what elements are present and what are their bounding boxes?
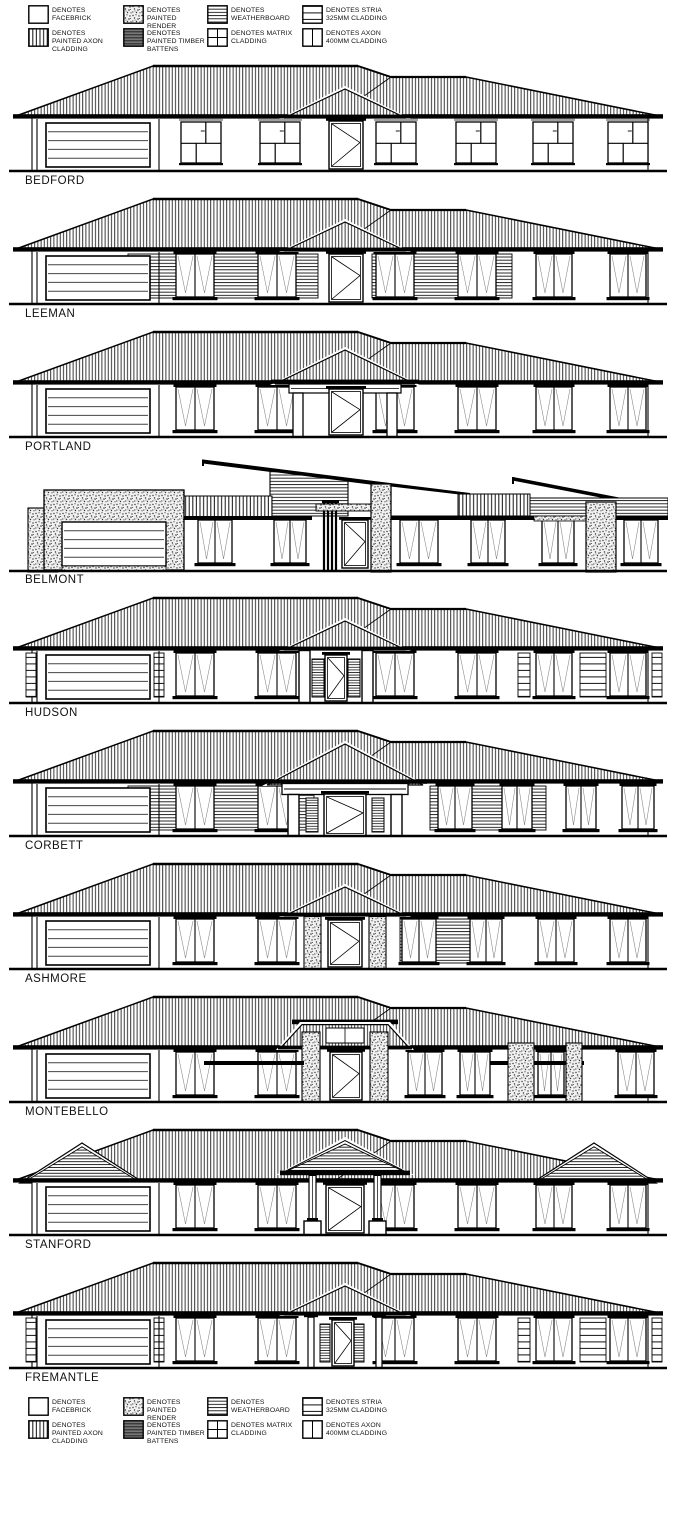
legend-column: DENOTES PAINTED RENDER DENOTES PAINTED T…: [123, 1397, 207, 1442]
legend-label: DENOTES PAINTED AXON CLADDING: [52, 28, 116, 53]
elevation-figure: HUDSON: [0, 591, 680, 719]
elevation-drawing-montebello: [8, 990, 668, 1110]
elevation-label: PORTLAND: [25, 441, 680, 453]
legend-label: DENOTES WEATHERBOARD: [231, 1397, 295, 1415]
window: [607, 384, 650, 433]
elevation-figure: STANFORD: [0, 1123, 680, 1251]
legend-label: DENOTES WEATHERBOARD: [231, 5, 295, 23]
elevation-figure: BEDFORD: [0, 59, 680, 187]
legend-label: DENOTES FACEBRICK: [52, 5, 116, 23]
legend-label: DENOTES STRIA 325mm CLADDING: [326, 5, 390, 23]
legend-label: DENOTES PAINTED TIMBER BATTENS: [147, 1420, 207, 1445]
elevation-figure: CORBETT: [0, 724, 680, 852]
window: [533, 251, 576, 300]
legend-item: DENOTES MATRIX CLADDING: [207, 28, 302, 50]
window: [455, 1182, 500, 1231]
legend-column: DENOTES WEATHERBOARD DENOTES MATRIX CLAD…: [207, 1397, 302, 1442]
window: [173, 1049, 218, 1098]
window: [399, 916, 440, 965]
legend-label: DENOTES PAINTED TIMBER BATTENS: [147, 28, 207, 53]
elevation-figure: PORTLAND: [0, 325, 680, 453]
painted-render-swatch-icon: [123, 1397, 144, 1416]
legend-item: DENOTES FACEBRICK: [28, 1397, 123, 1419]
stria-cladding-swatch-icon: [302, 1397, 323, 1416]
elevation-label: LEEMAN: [25, 308, 680, 320]
window: [455, 1315, 500, 1364]
window: [533, 650, 576, 699]
entry-door: [339, 517, 371, 568]
elevation-figure: MONTEBELLO: [0, 990, 680, 1118]
window: [405, 1049, 446, 1098]
window: [373, 251, 418, 300]
entry-door: [326, 251, 366, 302]
window: [619, 783, 658, 832]
legend-item: DENOTES PAINTED RENDER: [123, 5, 207, 27]
legend-label: DENOTES MATRIX CLADDING: [231, 28, 295, 46]
window: [455, 650, 500, 699]
elevation-drawing-corbett: [8, 724, 668, 844]
painted-timber-battens-swatch-icon: [123, 28, 144, 47]
matrix-cladding-swatch-icon: [207, 1420, 228, 1439]
window: [255, 1049, 300, 1098]
window: [467, 916, 506, 965]
window: [179, 116, 223, 165]
elevation-drawing-stanford: [8, 1123, 668, 1243]
elevation-label: FREMANTLE: [25, 1372, 680, 1384]
elevation-sheet: BEDFORD LEEMAN PORTLAND BELMONT HUDSON C…: [0, 50, 680, 1384]
window: [535, 916, 578, 965]
elevation-figure: BELMONT: [0, 458, 680, 586]
garage-door: [37, 252, 159, 304]
window: [468, 517, 509, 566]
entry-door: [323, 1182, 367, 1233]
garage-door: [37, 1316, 159, 1368]
window: [173, 1315, 218, 1364]
window: [255, 1182, 300, 1231]
elevation-figure: FREMANTLE: [0, 1256, 680, 1384]
legend-column: DENOTES WEATHERBOARD DENOTES MATRIX CLAD…: [207, 5, 302, 50]
window: [195, 517, 236, 566]
window: [607, 916, 650, 965]
elevation-figure: ASHMORE: [0, 857, 680, 985]
legend-label: DENOTES MATRIX CLADDING: [231, 1420, 295, 1438]
elevation-drawing-fremantle: [8, 1256, 668, 1376]
legend-item: DENOTES WEATHERBOARD: [207, 1397, 302, 1419]
window: [255, 251, 300, 300]
window: [173, 650, 218, 699]
window: [173, 783, 218, 832]
legend-column: DENOTES PAINTED RENDER DENOTES PAINTED T…: [123, 5, 207, 50]
legend-item: DENOTES AXON 400MM CLADDING: [302, 28, 397, 50]
elevation-label: STANFORD: [25, 1239, 680, 1251]
window: [457, 1049, 494, 1098]
legend-item: DENOTES MATRIX CLADDING: [207, 1420, 302, 1442]
window: [533, 384, 576, 433]
legend-label: DENOTES PAINTED RENDER: [147, 5, 207, 30]
legend-item: DENOTES PAINTED AXON CLADDING: [28, 1420, 123, 1442]
window: [607, 1315, 650, 1364]
garage-door: [37, 385, 159, 437]
window: [255, 650, 300, 699]
axon-400-cladding-swatch-icon: [302, 1420, 323, 1439]
window: [255, 916, 300, 965]
window: [615, 1049, 658, 1098]
window: [607, 1182, 650, 1231]
garage-door: [37, 917, 159, 969]
window: [435, 783, 476, 832]
window: [173, 251, 218, 300]
weatherboard-swatch-icon: [207, 5, 228, 24]
legend-label: DENOTES STRIA 325mm CLADDING: [326, 1397, 390, 1415]
legend-label: DENOTES AXON 400MM CLADDING: [326, 1420, 390, 1438]
garage-door: [37, 1050, 159, 1102]
facebrick-swatch-icon: [28, 5, 49, 24]
legend-item: DENOTES PAINTED TIMBER BATTENS: [123, 28, 207, 50]
window: [539, 517, 578, 566]
window: [606, 116, 650, 165]
painted-axon-cladding-swatch-icon: [28, 28, 49, 47]
elevation-label: ASHMORE: [25, 973, 680, 985]
garage-door: [37, 784, 159, 836]
legend-column: DENOTES FACEBRICK DENOTES PAINTED AXON C…: [28, 5, 123, 50]
elevation-drawing-portland: [8, 325, 668, 445]
window: [531, 116, 575, 165]
legend-item: DENOTES WEATHERBOARD: [207, 5, 302, 27]
legend-item: DENOTES FACEBRICK: [28, 5, 123, 27]
legend-column: DENOTES STRIA 325mm CLADDING DENOTES AXO…: [302, 5, 397, 50]
window: [535, 1049, 568, 1098]
elevation-label: CORBETT: [25, 840, 680, 852]
entry-door: [326, 386, 366, 435]
window: [621, 517, 662, 566]
window: [455, 384, 500, 433]
entry-door: [326, 118, 366, 169]
legend-item: DENOTES AXON 400MM CLADDING: [302, 1420, 397, 1442]
facebrick-swatch-icon: [28, 1397, 49, 1416]
legend-column: DENOTES FACEBRICK DENOTES PAINTED AXON C…: [28, 1397, 123, 1442]
window: [607, 650, 650, 699]
entry-door: [329, 1317, 357, 1366]
window: [271, 517, 310, 566]
elevation-label: BEDFORD: [25, 175, 680, 187]
elevation-figure: LEEMAN: [0, 192, 680, 320]
entry-door: [321, 791, 369, 836]
window: [173, 916, 218, 965]
legend-bottom: DENOTES FACEBRICK DENOTES PAINTED AXON C…: [0, 1389, 680, 1448]
garage-door: [37, 651, 159, 703]
painted-render-swatch-icon: [123, 5, 144, 24]
legend-item: DENOTES PAINTED AXON CLADDING: [28, 28, 123, 50]
elevation-drawing-leeman: [8, 192, 668, 312]
window: [397, 517, 442, 566]
legend-item: DENOTES STRIA 325mm CLADDING: [302, 5, 397, 27]
window: [173, 384, 218, 433]
legend-label: DENOTES AXON 400MM CLADDING: [326, 28, 390, 46]
window: [607, 251, 650, 300]
elevation-label: HUDSON: [25, 707, 680, 719]
legend-label: DENOTES PAINTED AXON CLADDING: [52, 1420, 116, 1445]
garage-door: [37, 119, 159, 171]
legend-item: DENOTES PAINTED TIMBER BATTENS: [123, 1420, 207, 1442]
legend-item: DENOTES PAINTED RENDER: [123, 1397, 207, 1419]
entry-door: [325, 917, 365, 967]
window: [373, 650, 418, 699]
window: [454, 116, 498, 165]
window: [255, 1315, 300, 1364]
stria-cladding-swatch-icon: [302, 5, 323, 24]
legend-label: DENOTES PAINTED RENDER: [147, 1397, 207, 1422]
window: [563, 783, 600, 832]
elevation-drawing-ashmore: [8, 857, 668, 977]
elevation-drawing-bedford: [8, 59, 668, 179]
legend-label: DENOTES FACEBRICK: [52, 1397, 116, 1415]
entry-door: [327, 1049, 365, 1100]
legend-top: DENOTES FACEBRICK DENOTES PAINTED AXON C…: [0, 0, 680, 50]
window: [258, 116, 302, 165]
painted-timber-battens-swatch-icon: [123, 1420, 144, 1439]
window: [374, 116, 418, 165]
window: [533, 1315, 576, 1364]
elevation-drawing-belmont: [8, 458, 668, 578]
garage-block: [28, 490, 184, 572]
weatherboard-swatch-icon: [207, 1397, 228, 1416]
axon-400-cladding-swatch-icon: [302, 28, 323, 47]
elevation-label: MONTEBELLO: [25, 1106, 680, 1118]
window: [533, 1182, 576, 1231]
legend-item: DENOTES STRIA 325mm CLADDING: [302, 1397, 397, 1419]
legend-column: DENOTES STRIA 325mm CLADDING DENOTES AXO…: [302, 1397, 397, 1442]
matrix-cladding-swatch-icon: [207, 28, 228, 47]
entry-door: [322, 652, 350, 701]
elevation-drawing-hudson: [8, 591, 668, 711]
painted-axon-cladding-swatch-icon: [28, 1420, 49, 1439]
window: [173, 1182, 218, 1231]
elevation-label: BELMONT: [25, 574, 680, 586]
window: [499, 783, 536, 832]
window: [455, 251, 500, 300]
garage-door: [37, 1183, 159, 1235]
